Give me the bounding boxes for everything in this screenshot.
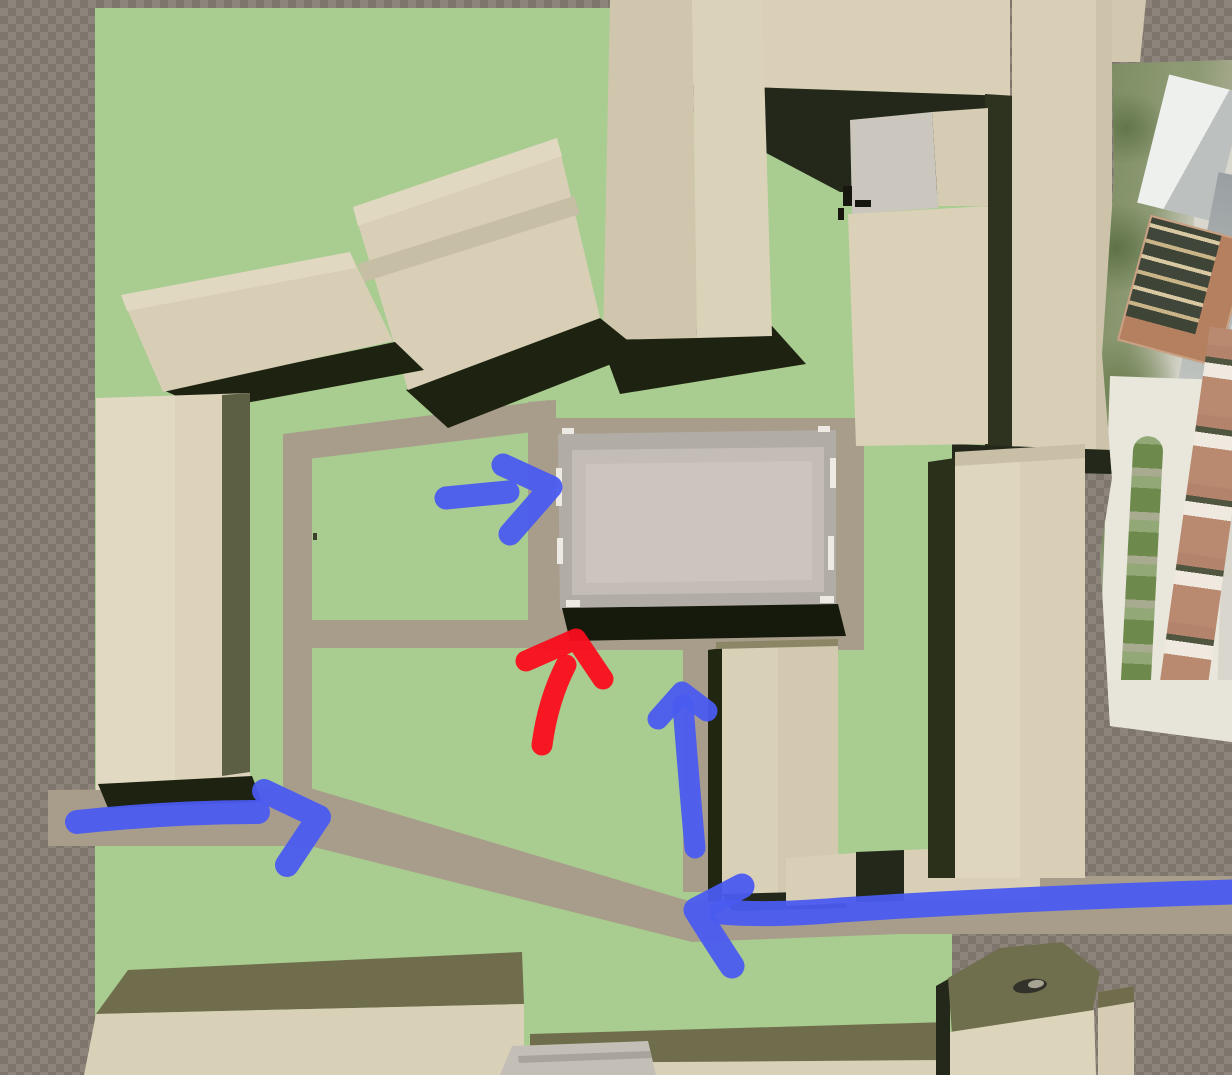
arrow-west-entrance-shaft — [77, 812, 258, 822]
central-building-highlight-2 — [557, 538, 563, 564]
rooftop-detail-2 — [855, 200, 871, 207]
central-building-highlight-4 — [828, 536, 834, 570]
central-building-highlight-5 — [566, 600, 580, 607]
scene-svg — [0, 0, 1232, 1075]
path-courtyard-middle — [295, 620, 558, 648]
map-viewport[interactable] — [0, 0, 1232, 1075]
building-top-center-right-face — [692, 0, 772, 338]
building-top-center-left-face — [603, 0, 697, 340]
building-east-mid-upper — [932, 108, 988, 206]
central-building-highlight-7 — [562, 428, 574, 434]
aerial-photo-overlay — [1096, 58, 1232, 746]
central-building-shadow — [562, 604, 846, 641]
arrow-plaza-west-shaft — [446, 492, 508, 498]
building-east-mid-gray-patch — [850, 112, 938, 214]
building-northeast-roof-bit — [1112, 0, 1146, 62]
building-south-long-face — [84, 1004, 524, 1075]
rooftop-detail-1 — [843, 186, 852, 206]
building-west-tower-left-face — [96, 396, 175, 790]
central-building-highlight-6 — [820, 596, 834, 603]
building-pentagon-left-shadow — [936, 978, 950, 1075]
building-east-tower-left-face — [955, 454, 1020, 878]
building-west-tower-olive-band — [222, 393, 250, 776]
building-south-mid-left-shadow — [708, 648, 722, 902]
central-building-highlight-3 — [830, 458, 836, 488]
arrow-path-north-shaft — [683, 705, 695, 848]
lawn-speck — [313, 533, 317, 540]
shadow-strip-northeast — [985, 94, 1016, 450]
central-building-inner — [586, 461, 812, 583]
building-east-tower-shadow — [928, 458, 955, 878]
building-east-mid — [848, 206, 988, 446]
central-building-highlight-8 — [818, 426, 830, 432]
rooftop-detail-3 — [838, 208, 844, 220]
